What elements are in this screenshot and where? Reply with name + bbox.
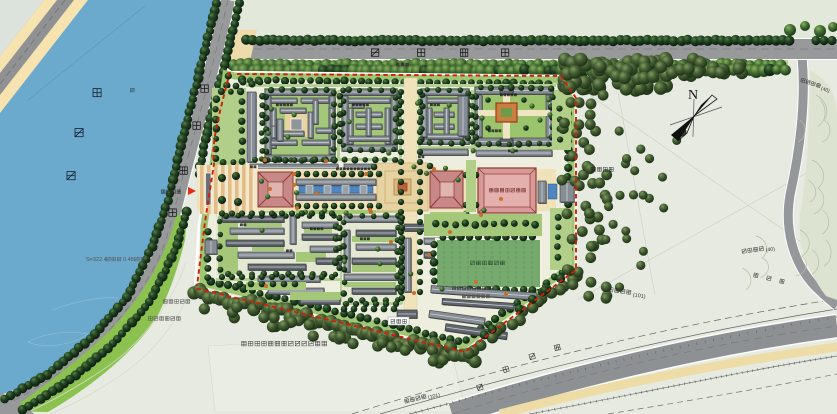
svg-text:0.48: 0.48 bbox=[123, 257, 134, 263]
svg-text:N: N bbox=[688, 88, 698, 103]
svg-text:S=322.4: S=322.4 bbox=[86, 257, 107, 263]
